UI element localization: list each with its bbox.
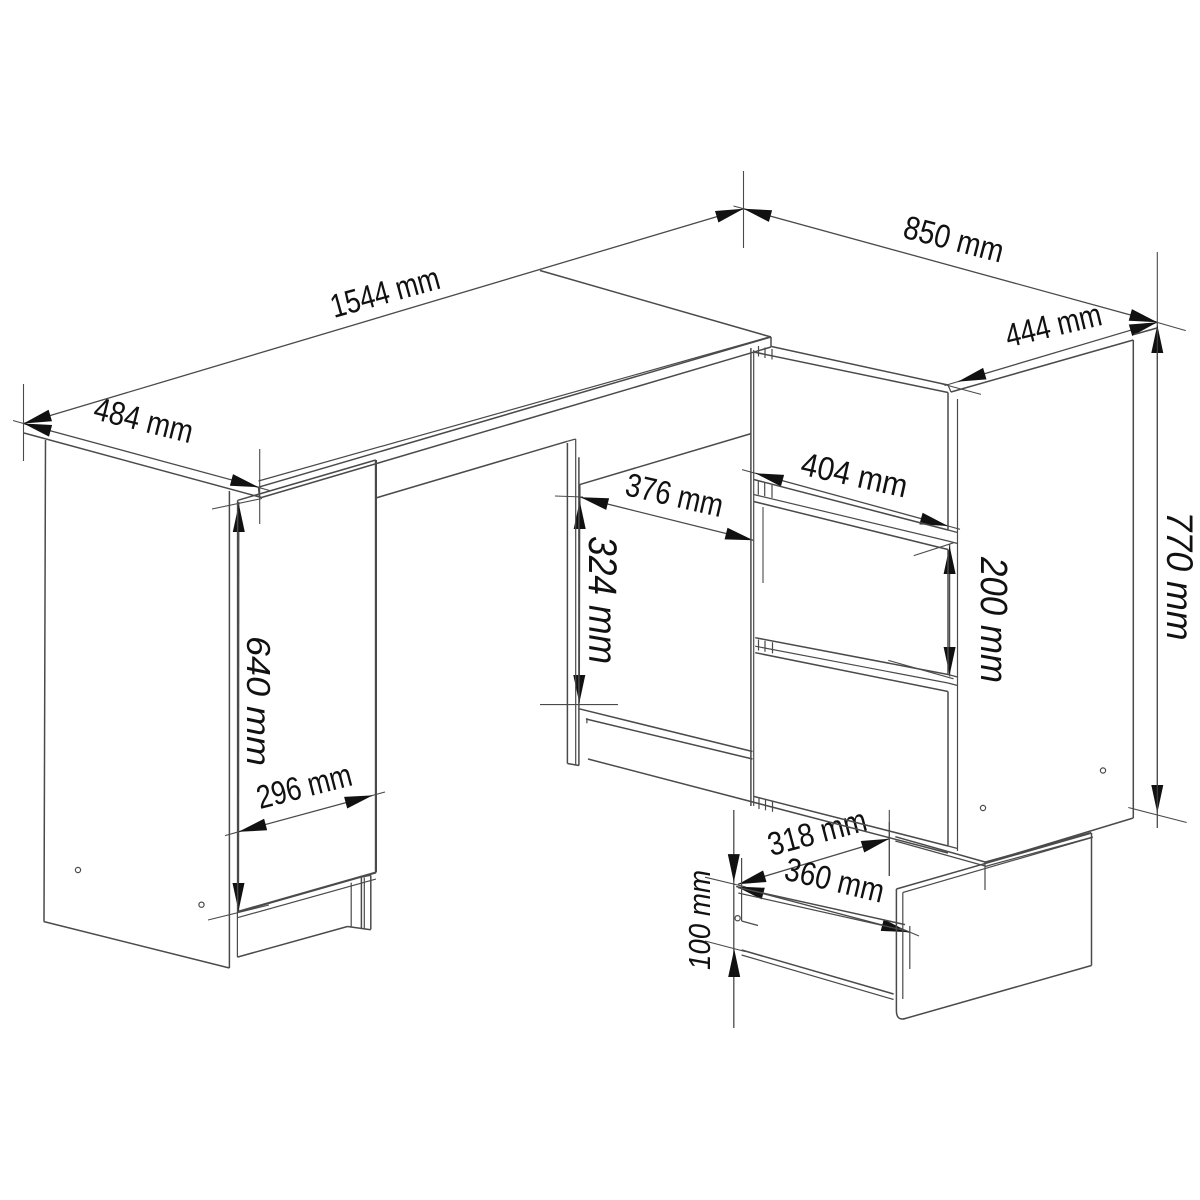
svg-text:770 mm: 770 mm (1159, 512, 1200, 641)
svg-text:100 mm: 100 mm (682, 870, 717, 970)
svg-text:200 mm: 200 mm (972, 556, 1014, 683)
svg-text:324 mm: 324 mm (580, 536, 624, 664)
svg-text:640 mm: 640 mm (240, 636, 277, 766)
